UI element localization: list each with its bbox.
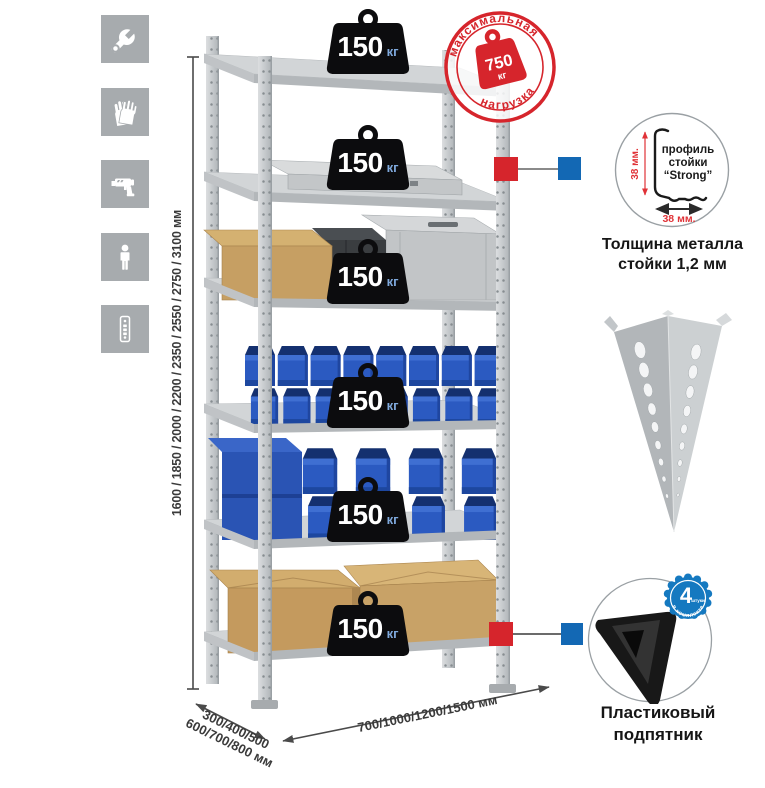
badge-unit: штуки (691, 598, 705, 603)
shelf-load-label-4: 150кг (322, 385, 414, 419)
foot-caption-line1: Пластиковый (578, 702, 738, 724)
load-unit: кг (387, 44, 399, 59)
post-profile-detail: 38 мм. 38 мм. профиль стойки “Strong” (612, 110, 732, 230)
load-unit: кг (387, 398, 399, 413)
foot-caption: Пластиковый подпятник (578, 702, 738, 746)
shelf-load-label-5: 150кг (322, 499, 414, 533)
shelf-load-label-2: 150кг (322, 147, 414, 181)
profile-dim-vertical-text: 38 мм. (630, 148, 641, 180)
load-unit: кг (387, 512, 399, 527)
profile-dim-horizontal-text: 38 мм. (662, 213, 695, 225)
height-dimension-line (187, 57, 199, 689)
large-bins-upper-row (303, 448, 496, 494)
height-dimension-text: 1600 / 1850 / 2000 / 2200 / 2350 / 2550 … (170, 198, 184, 528)
profile-caption-line1: Толщина металла (585, 235, 760, 255)
badge-count: 4 (680, 583, 693, 608)
load-unit: кг (387, 160, 399, 175)
profile-label-line3: “Strong” (664, 170, 713, 182)
load-value: 150 (337, 31, 382, 63)
callout-blue-square-top (558, 157, 581, 180)
load-unit: кг (387, 274, 399, 289)
callout-red-square-bottom (489, 622, 513, 646)
callout-foot (489, 622, 583, 646)
blue-box (208, 438, 302, 540)
profile-label-line2: стойки (669, 157, 708, 169)
load-value: 150 (337, 261, 382, 293)
profile-label-line1: профиль (662, 144, 715, 156)
profile-caption-line2: стойки 1,2 мм (585, 255, 760, 275)
load-unit: кг (387, 626, 399, 641)
weight-icons (327, 12, 409, 657)
shelf-load-label-1: 150кг (322, 31, 414, 65)
load-value: 150 (337, 499, 382, 531)
callout-blue-square-bottom (561, 623, 583, 645)
load-value: 150 (337, 385, 382, 417)
angle-post-image (598, 306, 748, 541)
foot-caption-line2: подпятник (578, 724, 738, 746)
callout-profile (494, 157, 581, 181)
included-count-badge: 4 штуки в комплекте (662, 572, 714, 624)
callout-red-square-top (494, 157, 518, 181)
load-value: 150 (337, 147, 382, 179)
shelf-load-label-3: 150кг (322, 261, 414, 295)
shelf-load-label-6: 150кг (322, 613, 414, 647)
profile-caption: Толщина металла стойки 1,2 мм (585, 235, 760, 276)
load-value: 150 (337, 613, 382, 645)
